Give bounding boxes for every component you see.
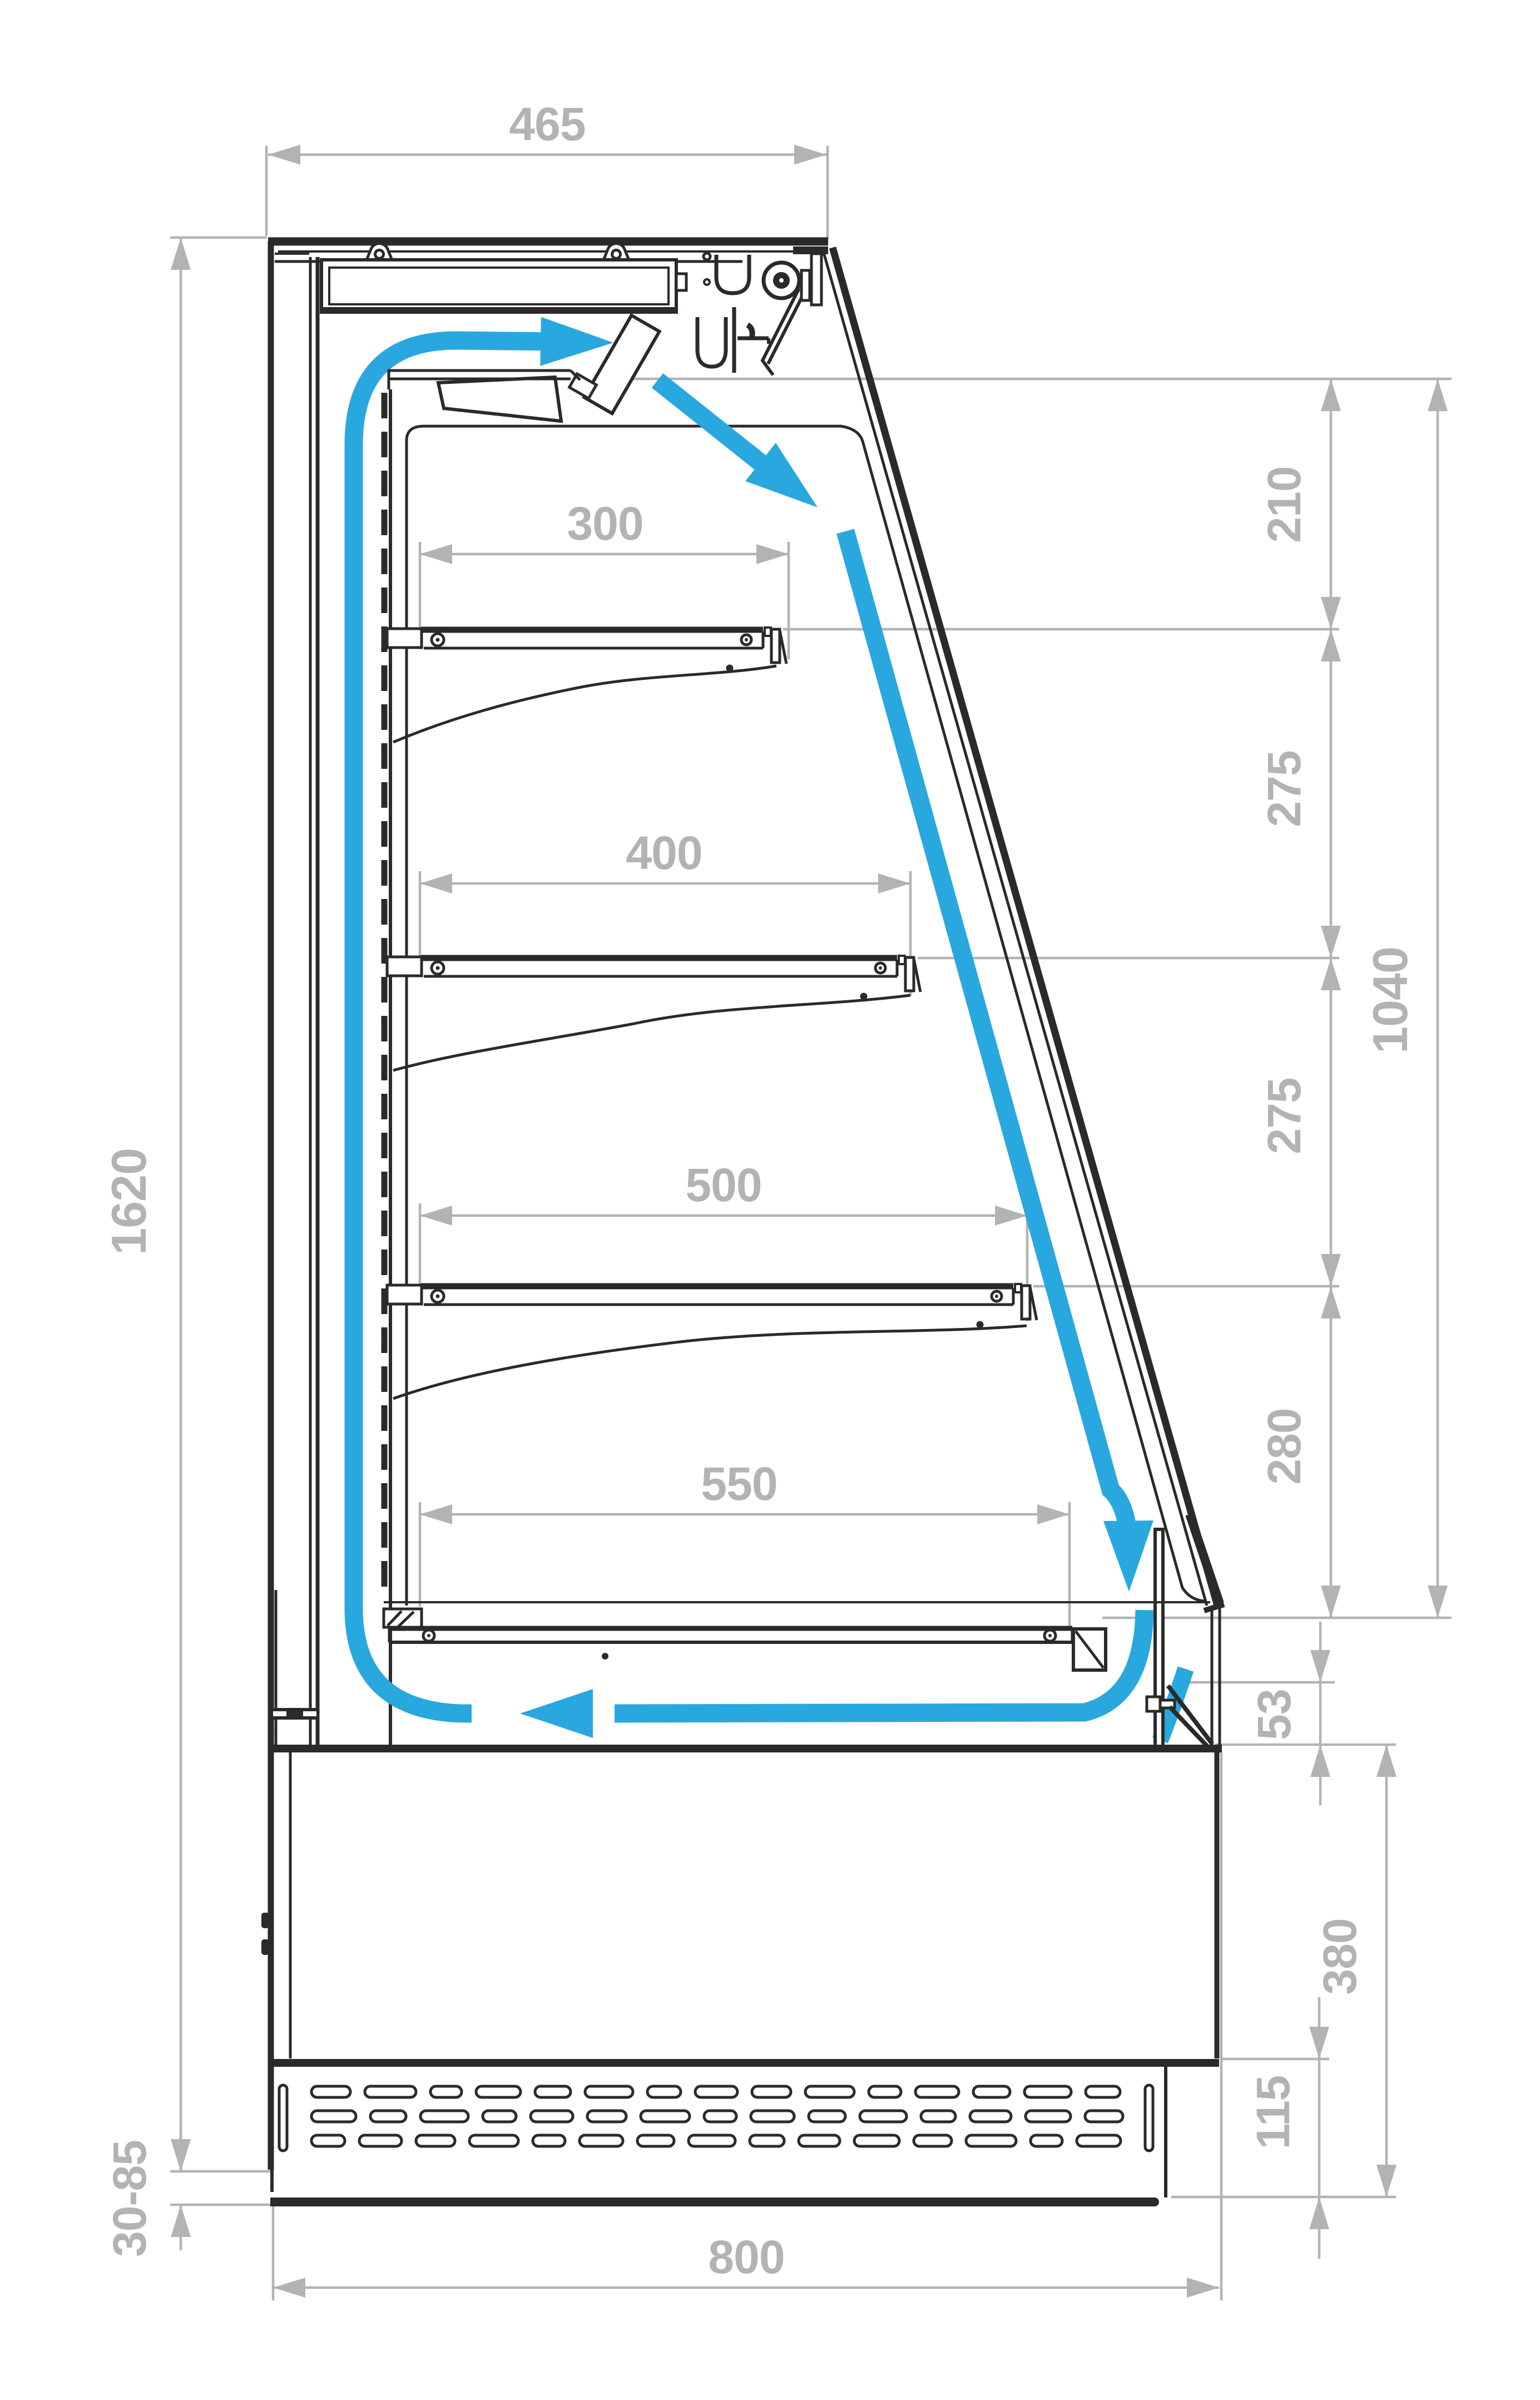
svg-text:1620: 1620 [101,1148,156,1255]
svg-text:115: 115 [1247,2076,1299,2150]
svg-text:380: 380 [1314,1918,1366,1994]
svg-text:465: 465 [509,98,585,150]
svg-text:30-85: 30-85 [103,2140,156,2257]
svg-text:800: 800 [708,2231,784,2283]
svg-text:500: 500 [685,1159,761,1211]
svg-text:275: 275 [1258,1078,1310,1154]
svg-text:53: 53 [1248,1689,1300,1740]
svg-text:1040: 1040 [1363,947,1418,1054]
svg-text:275: 275 [1258,750,1310,827]
svg-text:280: 280 [1258,1408,1310,1484]
svg-text:210: 210 [1258,466,1310,542]
svg-text:550: 550 [701,1458,777,1510]
svg-text:400: 400 [626,827,702,879]
svg-text:300: 300 [567,497,643,550]
